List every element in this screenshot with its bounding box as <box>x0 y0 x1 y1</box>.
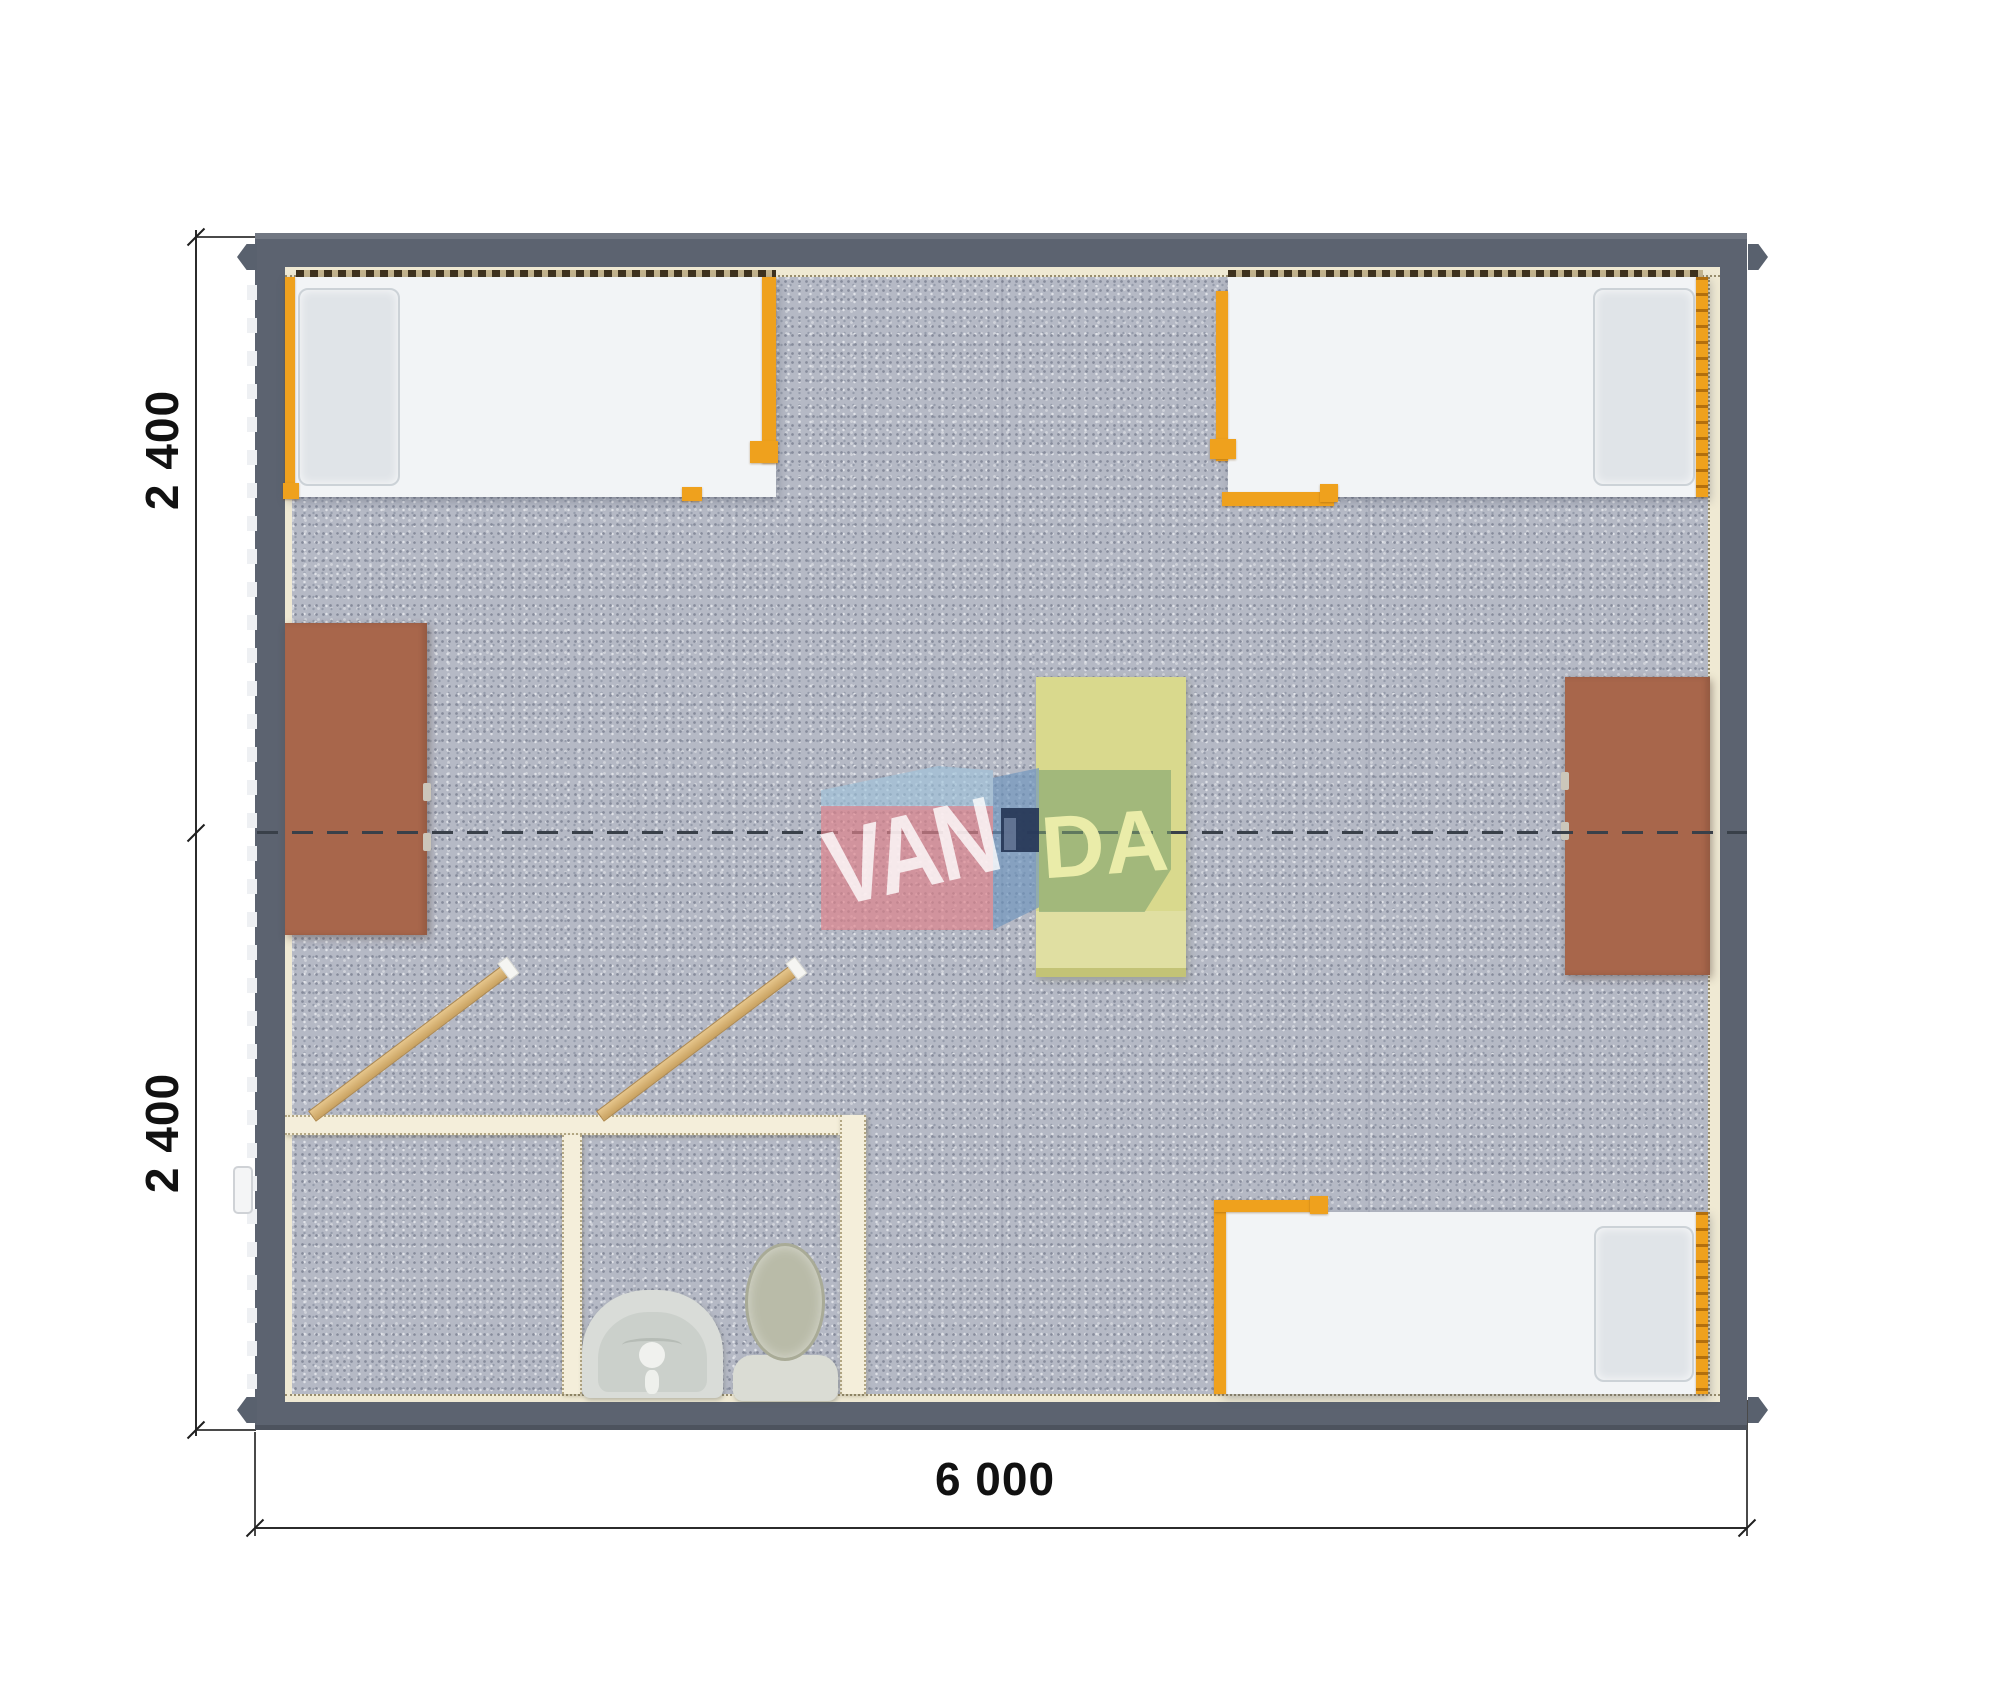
wall-liner-bottom <box>285 1394 1720 1402</box>
bed-frame-rail <box>285 277 295 497</box>
dimension-label-left-top: 2 400 <box>136 330 188 570</box>
bed-frame-rail <box>1696 277 1708 497</box>
bed-frame-corner <box>682 487 702 501</box>
toilet-base <box>733 1355 838 1401</box>
bed-top-right <box>1228 277 1708 497</box>
bed-frame-corner <box>1320 484 1338 502</box>
facade-dash-strip-left <box>247 285 257 1395</box>
bed-frame-rail <box>1696 1212 1708 1394</box>
bed-frame-rail <box>1222 492 1334 506</box>
desk-handle <box>1561 772 1569 790</box>
corner-marker-bottom-right-icon <box>1748 1397 1768 1423</box>
dimension-line-bottom <box>255 1527 1748 1529</box>
corner-marker-top-right-icon <box>1748 244 1768 270</box>
bed-frame-corner <box>1210 439 1236 459</box>
extension-line-bottom-left <box>196 1429 256 1431</box>
pillow <box>1593 288 1695 486</box>
faucet-icon <box>639 1342 665 1368</box>
pillow <box>1594 1226 1694 1382</box>
bed-frame-corner <box>283 483 299 499</box>
partition-wall-horizontal <box>285 1115 866 1135</box>
dimension-label-left-bottom: 2 400 <box>136 1013 188 1253</box>
bed-top-left <box>285 277 776 497</box>
desk-handle <box>423 783 431 801</box>
bed-frame-corner <box>1310 1196 1328 1214</box>
bed-frame-rail <box>1214 1200 1324 1212</box>
bed-frame-rail <box>1214 1212 1226 1394</box>
desk-handle <box>423 833 431 851</box>
bed-frame-rail <box>1216 291 1228 461</box>
floor-seam <box>1001 277 1003 1394</box>
partition-wall-right <box>840 1115 866 1394</box>
desk-left <box>285 623 427 935</box>
desk-right <box>1565 677 1710 975</box>
bed-frame-corner <box>750 441 778 463</box>
extension-line-top-left <box>196 236 262 238</box>
toilet <box>733 1243 839 1401</box>
faucet-handle-icon <box>645 1370 659 1394</box>
window-strip-top-right <box>1228 270 1703 277</box>
floor-plan-canvas: 2 400 2 400 6 000 <box>0 0 2000 1701</box>
sink <box>582 1290 723 1398</box>
bed-bottom-right <box>1222 1212 1708 1394</box>
center-table <box>1036 677 1186 977</box>
module-split-line <box>257 831 1747 834</box>
dimension-label-bottom: 6 000 <box>895 1452 1095 1506</box>
extension-line-bottom-start <box>254 1432 256 1536</box>
pillow <box>298 288 400 486</box>
corner-marker-bottom-left-icon <box>237 1397 257 1423</box>
bed-frame-rail <box>762 277 776 463</box>
partition-wall-middle <box>562 1135 582 1394</box>
entrance-door-handle <box>233 1166 253 1214</box>
corner-marker-top-left-icon <box>237 244 257 270</box>
window-strip-top-left <box>296 270 776 277</box>
toilet-lid <box>745 1243 825 1361</box>
floor-seam <box>285 497 1720 499</box>
